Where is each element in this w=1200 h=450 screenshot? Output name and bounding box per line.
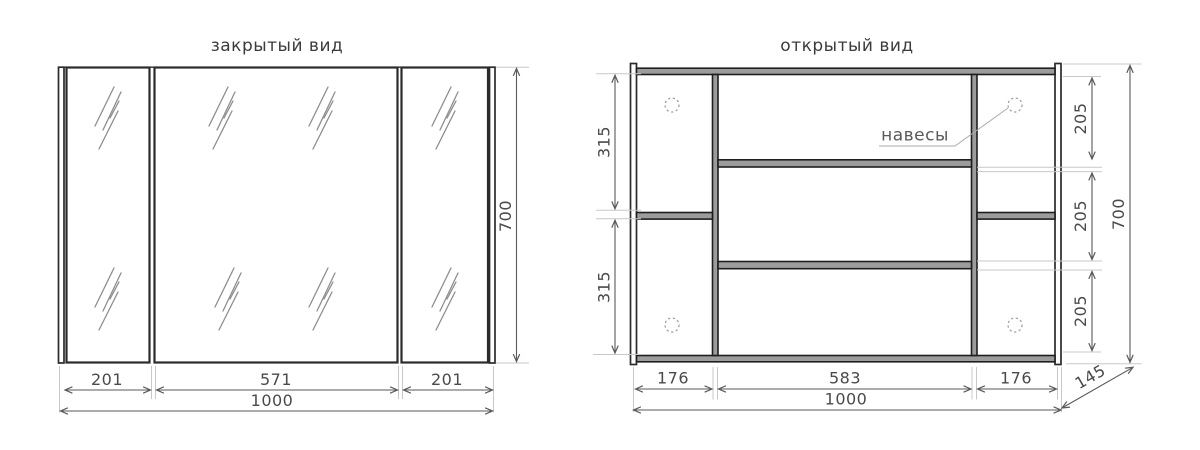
hinge-hole-icon (1008, 98, 1022, 112)
closed-view: закрытый вид 700 (58, 36, 529, 413)
dim-label-closed-total-width: 1000 (251, 391, 294, 410)
dim-label-right-section: 176 (1000, 369, 1032, 388)
middle-shelf-upper (718, 160, 972, 167)
dim-label-open-height: 700 (1109, 198, 1128, 230)
hinge-hole-icon (665, 98, 679, 112)
hinge-hole-icon (665, 318, 679, 332)
mirror-door-left (67, 68, 150, 363)
dim-label-open-total-width: 1000 (825, 390, 868, 409)
dim-label-shelf-top: 205 (1071, 102, 1090, 134)
closed-view-title: закрытый вид (211, 36, 344, 56)
mirror-door-middle (155, 68, 398, 363)
dim-label-middle-door: 571 (260, 370, 292, 389)
hinge-hole-icon (1008, 318, 1022, 332)
left-column-shelf (637, 213, 713, 220)
open-view-depth-dimension: 145 (1062, 360, 1133, 408)
cabinet-left-side-panel (59, 67, 65, 363)
closed-view-cabinet (58, 67, 495, 363)
open-view-title: открытый вид (780, 36, 913, 56)
mirror-cabinet-drawing: закрытый вид 700 (0, 0, 1200, 450)
hinges-callout: навесы (879, 108, 1008, 146)
closed-view-width-dimensions: 201 571 201 1000 (60, 366, 494, 413)
dim-label-depth: 145 (1072, 360, 1109, 392)
carcass-divider-right (972, 75, 978, 356)
dim-label-right-door: 201 (431, 370, 463, 389)
dim-label-shelf-bottom: 205 (1071, 295, 1090, 327)
dim-label-shelf-middle: 205 (1071, 200, 1090, 232)
carcass-divider-left (713, 75, 719, 356)
carcass-left-wall (631, 64, 637, 365)
dim-label-closed-height: 700 (496, 200, 515, 232)
mirror-door-right (402, 68, 489, 363)
dim-label-middle-section: 583 (829, 369, 861, 388)
dim-label-left-door: 201 (91, 370, 123, 389)
carcass-right-wall (1055, 64, 1061, 365)
right-column-shelf (977, 213, 1055, 220)
dim-label-left-bottom: 315 (595, 271, 614, 303)
dim-label-left-section: 176 (657, 369, 689, 388)
closed-view-height-dimension: 700 (496, 67, 529, 363)
open-view-carcass (631, 64, 1062, 365)
furniture-drawing-page: закрытый вид 700 (0, 0, 1200, 450)
cabinet-right-side-panel (490, 67, 496, 363)
dim-label-left-top: 315 (595, 126, 614, 158)
middle-shelf-lower (718, 262, 972, 269)
carcass-top-panel (637, 68, 1056, 74)
carcass-bottom-panel (637, 356, 1056, 362)
open-view-width-dimensions: 176 583 176 1000 (634, 367, 1062, 412)
open-view: открытый вид навесы (593, 36, 1142, 412)
hinges-label: навесы (881, 126, 949, 146)
